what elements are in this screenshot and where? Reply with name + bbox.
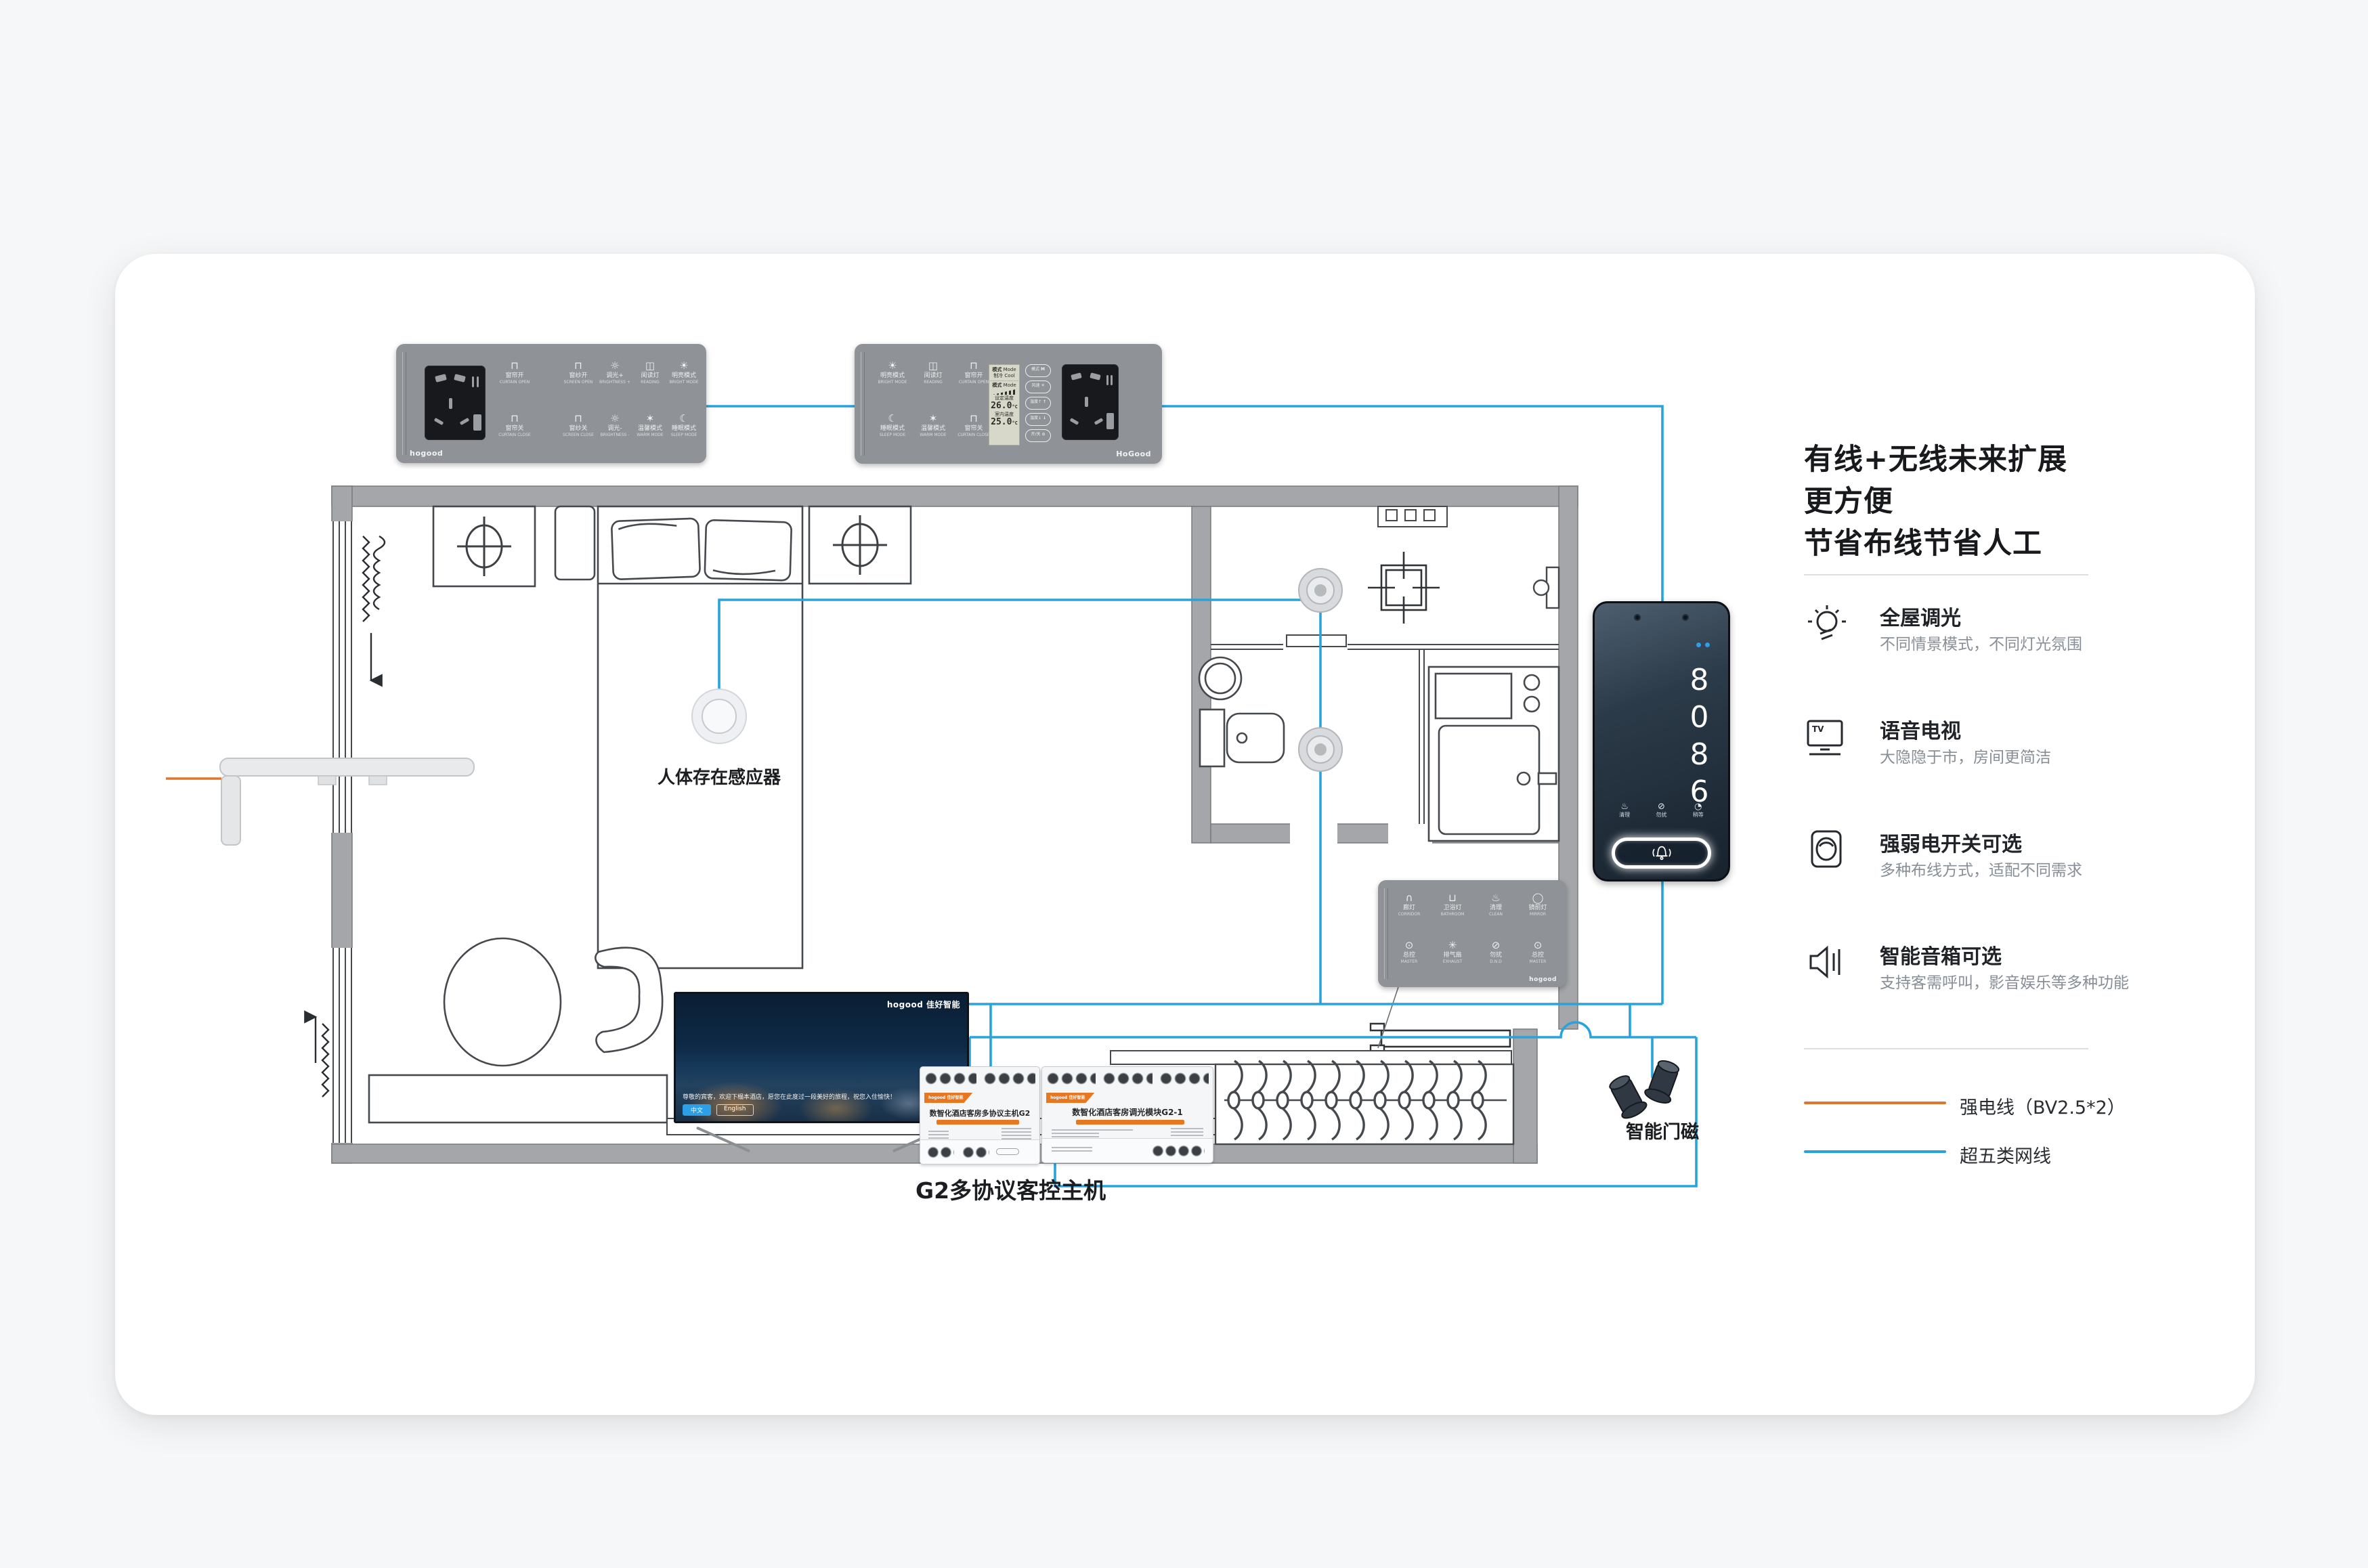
feature-title: 智能音箱可选 bbox=[1880, 940, 2002, 970]
bright-mode-icon: ☀ bbox=[666, 360, 702, 372]
screen-open-icon: ⊓ bbox=[559, 360, 598, 372]
feature-title: 强弱电开关可选 bbox=[1880, 827, 2022, 857]
fan-icon: ✳ bbox=[1434, 940, 1471, 951]
svg-text:TV: TV bbox=[1812, 724, 1824, 734]
thermostat-lcd: 模式 Mode 制冷 Cool 模式 Mode 设定温度 26.0°C 室内温度… bbox=[989, 364, 1020, 445]
din-title: 数智化酒店客房多协议主机G2 bbox=[920, 1108, 1039, 1118]
page: { "colors":{ "wire-strong":"#E0762C", "w… bbox=[0, 0, 2368, 1568]
btn-curtain-close-2[interactable]: ⊓ 窗帘关 CURTAIN CLOSE bbox=[955, 413, 993, 438]
btn-corridor-light[interactable]: ∩ 廊灯 CORRIDOR bbox=[1390, 892, 1428, 917]
terminal-row bbox=[924, 1070, 1035, 1088]
clean-icon: ♨ bbox=[1619, 802, 1630, 812]
host-label: G2多协议客控主机 bbox=[916, 1173, 1186, 1205]
power-icon: ⊙ bbox=[1390, 940, 1428, 951]
feature-desc: 多种布线方式，适配不同需求 bbox=[1880, 857, 2082, 880]
btn-bathroom-light[interactable]: ⊔ 卫浴灯 BATHROOM bbox=[1434, 892, 1471, 917]
terminal-row bbox=[1046, 1070, 1209, 1088]
dnd-icon: ⊘ bbox=[1477, 940, 1515, 951]
din-module-host: hogood 佳好智能 数智化酒店客房多协议主机G2 bbox=[920, 1066, 1040, 1164]
strong-wire-swatch bbox=[1804, 1102, 1946, 1104]
door-magnet-label: 智能门磁 bbox=[1588, 1117, 1737, 1144]
bell-icon bbox=[1650, 842, 1673, 865]
btn-master-2[interactable]: ⊙ 总控 MASTER bbox=[1519, 940, 1557, 965]
fan-speed-bars bbox=[993, 389, 1016, 395]
camera-dot bbox=[1682, 614, 1689, 621]
power-socket-icon bbox=[1062, 364, 1119, 440]
btn-bright-mode-2[interactable]: ☀ 明亮模式 BRIGHT MODE bbox=[874, 360, 911, 385]
terminal-row-bottom bbox=[927, 1145, 954, 1160]
btn-temp-up[interactable]: 温度↑ ↑ bbox=[1025, 397, 1051, 410]
warm-mode-icon: ✶ bbox=[914, 413, 952, 424]
btn-temp-down[interactable]: 温度↓ ↓ bbox=[1025, 413, 1051, 426]
brand-logo: hogood bbox=[1529, 976, 1557, 983]
action-dnd[interactable]: ⊘ 勿扰 bbox=[1656, 802, 1666, 819]
din-module-dimmer: hogood 佳好智能 数智化酒店客房调光模块G2-1 bbox=[1041, 1066, 1213, 1163]
btn-sleep-mode[interactable]: ☾ 睡眠模式 SLEEP MODE bbox=[666, 413, 702, 438]
reading-light-icon: ◫ bbox=[914, 360, 952, 372]
tv-lang-chinese-button[interactable]: 中文 bbox=[683, 1104, 711, 1116]
feature-title: 全屋调光 bbox=[1880, 601, 1961, 631]
brand-logo: HoGood bbox=[1116, 450, 1151, 458]
btn-sleep-mode-2[interactable]: ☾ 睡眠模式 SLEEP MODE bbox=[874, 413, 911, 438]
brightness-down-icon: ☼ bbox=[597, 413, 633, 424]
status-dots bbox=[1696, 643, 1710, 647]
brightness-up-icon: ☼ bbox=[597, 360, 633, 372]
power-icon: ⊙ bbox=[1041, 432, 1045, 437]
btn-screen-open[interactable]: ⊓ 窗纱开 SCREEN OPEN bbox=[559, 360, 598, 385]
headline-line2: 节省布线节省人工 bbox=[1804, 523, 2095, 565]
din-title: 数智化酒店客房调光模块G2-1 bbox=[1042, 1106, 1213, 1118]
din-brand-chip: hogood 佳好智能 bbox=[1046, 1093, 1094, 1103]
bathtub-icon: ⊔ bbox=[1434, 892, 1471, 904]
brand-logo: hogood bbox=[410, 449, 443, 458]
btn-dnd[interactable]: ⊘ 勿扰 D.N.D bbox=[1477, 940, 1515, 965]
din-brand-chip: hogood 佳好智能 bbox=[924, 1093, 972, 1103]
btn-brightness-up[interactable]: ☼ 调光+ BRIGHTNESS + bbox=[597, 360, 633, 385]
bright-mode-icon: ☀ bbox=[874, 360, 911, 372]
btn-fan-speed[interactable]: 风速 ✳ bbox=[1025, 380, 1051, 393]
power-socket-icon bbox=[425, 366, 486, 440]
btn-warm-mode[interactable]: ✶ 温馨模式 WARM MODE bbox=[632, 413, 668, 438]
speaker-icon bbox=[1804, 940, 1849, 984]
warm-mode-icon: ✶ bbox=[632, 413, 668, 424]
btn-brightness-down[interactable]: ☼ 调光- BRIGHTNESS - bbox=[597, 413, 633, 438]
action-clean[interactable]: ♨ 清理 bbox=[1619, 802, 1630, 819]
btn-power[interactable]: 开/关 ⊙ bbox=[1025, 429, 1051, 442]
feature-desc: 大隐隐于市，房间更简洁 bbox=[1880, 744, 2051, 767]
doorbell-button[interactable] bbox=[1612, 837, 1711, 869]
feature-desc: 支持客需呼叫，影音娱乐等多种功能 bbox=[1880, 970, 2129, 993]
btn-reading-light[interactable]: ◫ 阅读灯 READING bbox=[632, 360, 668, 385]
feature-title: 语音电视 bbox=[1880, 714, 1961, 744]
tv-icon: TV bbox=[1804, 714, 1849, 759]
terminal-row-bottom bbox=[1152, 1144, 1205, 1158]
mode-icon: M bbox=[1041, 367, 1045, 372]
temp-down-icon: ↓ bbox=[1043, 416, 1046, 420]
terminal-row-bottom bbox=[962, 1145, 989, 1160]
action-wait[interactable]: ◔ 稍等 bbox=[1693, 802, 1704, 819]
door-display-panel: 8086 ♨ 清理 ⊘ 勿扰 ◔ 稍等 bbox=[1593, 601, 1730, 881]
btn-screen-close[interactable]: ⊓ 窗纱关 SCREEN CLOSE bbox=[559, 413, 598, 438]
tv-brand-logo: hogood 佳好智能 bbox=[887, 999, 960, 1010]
entry-switch-panel: ⊓ 窗帘开 CURTAIN OPEN ⊓ 窗纱开 SCREEN OPEN ☼ 调… bbox=[396, 344, 706, 463]
network-wire-swatch bbox=[1804, 1150, 1946, 1153]
divider bbox=[1804, 1048, 2088, 1049]
btn-master-1[interactable]: ⊙ 总控 MASTER bbox=[1390, 940, 1428, 965]
sleep-mode-icon: ☾ bbox=[666, 413, 702, 424]
btn-exhaust-fan[interactable]: ✳ 排气扇 EXHAUST bbox=[1434, 940, 1471, 965]
tv-lang-english-button[interactable]: English bbox=[716, 1104, 754, 1116]
port bbox=[996, 1148, 1019, 1155]
curtain-close-icon: ⊓ bbox=[955, 413, 993, 424]
thermostat-panel: ☀ 明亮模式 BRIGHT MODE ◫ 阅读灯 READING ⊓ 窗帘开 C… bbox=[855, 344, 1162, 464]
btn-mirror-light[interactable]: ◯ 镜前灯 MIRROR bbox=[1519, 892, 1557, 917]
bulb-icon bbox=[1804, 601, 1849, 646]
switch-icon bbox=[1804, 827, 1849, 872]
tv-welcome-text: 尊敬的宾客，欢迎下榻本酒店，愿您在此度过一段美好的旅程，祝您入住愉快！ bbox=[683, 1092, 960, 1101]
btn-curtain-close[interactable]: ⊓ 窗帘关 CURTAIN CLOSE bbox=[495, 413, 534, 438]
btn-mode[interactable]: 模式 M bbox=[1025, 364, 1051, 377]
bathroom-panel: ∩ 廊灯 CORRIDOR ⊔ 卫浴灯 BATHROOM ♨ 清理 CLEAN … bbox=[1378, 880, 1566, 987]
dnd-icon: ⊘ bbox=[1656, 802, 1666, 812]
clean-icon: ♨ bbox=[1477, 892, 1515, 904]
divider bbox=[1804, 574, 2088, 575]
wait-icon: ◔ bbox=[1693, 802, 1704, 812]
room-temp-value: 25.0°C bbox=[990, 418, 1018, 428]
btn-reading-light-2[interactable]: ◫ 阅读灯 READING bbox=[914, 360, 952, 385]
room-number: 8086 bbox=[1606, 663, 1717, 812]
door-display-screen: 8086 ♨ 清理 ⊘ 勿扰 ◔ 稍等 bbox=[1606, 636, 1717, 827]
info-panel: 有线+无线未来扩展更方便 节省布线节省人工 bbox=[1804, 439, 2095, 565]
feature-desc: 不同情景模式，不同灯光氛围 bbox=[1880, 631, 2082, 654]
mirror-light-icon: ◯ bbox=[1519, 892, 1557, 904]
headline-line1: 有线+无线未来扩展更方便 bbox=[1804, 439, 2095, 523]
curtain-open-icon: ⊓ bbox=[495, 360, 534, 372]
btn-bright-mode[interactable]: ☀ 明亮模式 BRIGHT MODE bbox=[666, 360, 702, 385]
curtain-close-icon: ⊓ bbox=[495, 413, 534, 424]
power-icon: ⊙ bbox=[1519, 940, 1557, 951]
curtain-open-icon: ⊓ bbox=[955, 360, 993, 372]
fan-icon: ✳ bbox=[1041, 383, 1044, 388]
lcd-state: 制冷 Cool bbox=[990, 373, 1018, 379]
presence-sensor-label: 人体存在感应器 bbox=[618, 764, 821, 789]
btn-clean[interactable]: ♨ 清理 CLEAN bbox=[1477, 892, 1515, 917]
corridor-light-icon: ∩ bbox=[1390, 892, 1428, 904]
sleep-mode-icon: ☾ bbox=[874, 413, 911, 424]
screen-close-icon: ⊓ bbox=[559, 413, 598, 424]
camera-dot bbox=[1634, 614, 1641, 621]
set-temp-value: 26.0°C bbox=[990, 401, 1018, 412]
btn-curtain-open-2[interactable]: ⊓ 窗帘开 CURTAIN OPEN bbox=[955, 360, 993, 385]
btn-curtain-open[interactable]: ⊓ 窗帘开 CURTAIN OPEN bbox=[495, 360, 534, 385]
reading-light-icon: ◫ bbox=[632, 360, 668, 372]
temp-up-icon: ↑ bbox=[1043, 399, 1046, 404]
btn-warm-mode-2[interactable]: ✶ 温馨模式 WARM MODE bbox=[914, 413, 952, 438]
